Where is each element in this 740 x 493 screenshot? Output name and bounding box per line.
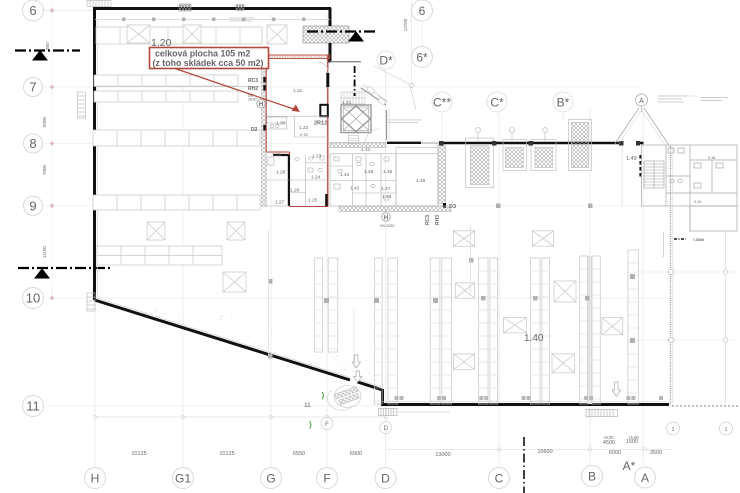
svg-text:(z toho skládek cca 50 m2): (z toho skládek cca 50 m2) [153,58,264,68]
svg-text:6: 6 [29,3,36,18]
svg-text:RH2: RH2 [248,86,258,92]
svg-text:11100: 11100 [42,246,47,258]
svg-text:13700: 13700 [403,18,408,31]
svg-text:A: A [639,98,644,105]
svg-text:H: H [259,102,263,108]
svg-text:B*: B* [557,96,570,110]
svg-text:RC3: RC3 [248,78,258,84]
svg-text:6900: 6900 [350,451,362,457]
svg-text:25/30: 25/30 [248,98,257,102]
svg-text:1.23: 1.23 [312,154,322,160]
svg-text:6: 6 [419,4,426,18]
svg-text:H: H [91,472,100,486]
svg-text:1.27: 1.27 [275,200,285,206]
svg-text:+5,00: +5,00 [603,435,614,440]
svg-text:7000: 7000 [42,164,47,175]
svg-text:6*: 6* [416,51,428,65]
svg-text:B: B [588,470,596,484]
svg-text:4500: 4500 [603,440,615,446]
svg-text:1.47: 1.47 [381,186,391,192]
svg-text:D: D [384,426,389,432]
svg-text:850: 850 [45,42,50,50]
svg-text:RH3: RH3 [435,215,441,225]
svg-text:1.24: 1.24 [311,175,321,181]
svg-text:1.22: 1.22 [299,125,309,131]
svg-text:DN 25/30: DN 25/30 [380,224,394,228]
svg-text:13000: 13000 [435,452,450,458]
svg-text:+5,00: +5,00 [628,435,639,440]
svg-text:1.41: 1.41 [361,147,371,153]
svg-text:1.30: 1.30 [276,121,286,127]
svg-text:6900: 6900 [42,116,47,127]
svg-text:D2: D2 [251,127,258,133]
svg-text:1.44: 1.44 [340,172,350,178]
svg-text:8: 8 [29,136,36,151]
svg-text:G: G [266,472,275,486]
svg-text:D*: D* [379,54,393,68]
svg-text:1.31: 1.31 [293,88,303,94]
svg-text:1.25: 1.25 [308,198,318,204]
svg-text:K 52: K 52 [300,133,308,137]
svg-text:1.26: 1.26 [290,188,300,194]
svg-text:3500: 3500 [650,450,662,456]
svg-text:1.42: 1.42 [350,186,360,192]
svg-text:1: 1 [725,427,728,433]
svg-text:H: H [384,215,388,221]
svg-text:C**: C** [433,96,451,110]
svg-text:2R12: 2R12 [314,121,327,127]
svg-text:11: 11 [304,402,311,409]
svg-text:6550: 6550 [293,451,305,457]
svg-text:9: 9 [29,198,36,213]
svg-text:10600: 10600 [537,449,552,455]
svg-text:1.28: 1.28 [276,170,286,176]
svg-text:A*: A* [623,459,636,473]
svg-text:F: F [325,422,329,428]
svg-text:1.21: 1.21 [342,100,352,106]
svg-text:7: 7 [29,80,36,95]
svg-text:11: 11 [26,399,40,414]
svg-text:1.43: 1.43 [382,194,392,200]
svg-text:6000: 6000 [609,450,621,456]
svg-text:0,18: 0,18 [708,156,715,160]
svg-text:10125: 10125 [219,451,234,457]
svg-text:10: 10 [26,291,40,306]
svg-text:10125: 10125 [131,451,146,457]
svg-text:D: D [381,472,390,486]
svg-text:RC3: RC3 [425,215,431,225]
svg-text:1,49: 1,49 [626,156,637,162]
svg-text:1.40: 1.40 [524,333,544,344]
svg-text:F: F [323,472,330,486]
svg-text:0,19: 0,19 [694,200,701,204]
svg-text:C: C [495,472,504,486]
svg-text:0,05 m: 0,05 m [693,238,704,242]
svg-text:1.48: 1.48 [416,178,426,184]
svg-text:1.29: 1.29 [272,152,282,158]
svg-text:celková plocha 105 m2: celková plocha 105 m2 [155,49,250,59]
svg-text:1: 1 [672,427,675,433]
svg-text:A: A [641,471,649,485]
svg-text:C*: C* [490,96,504,110]
svg-text:1.45: 1.45 [364,169,374,175]
svg-text:G1: G1 [175,472,191,486]
svg-text:1.46: 1.46 [383,169,393,175]
